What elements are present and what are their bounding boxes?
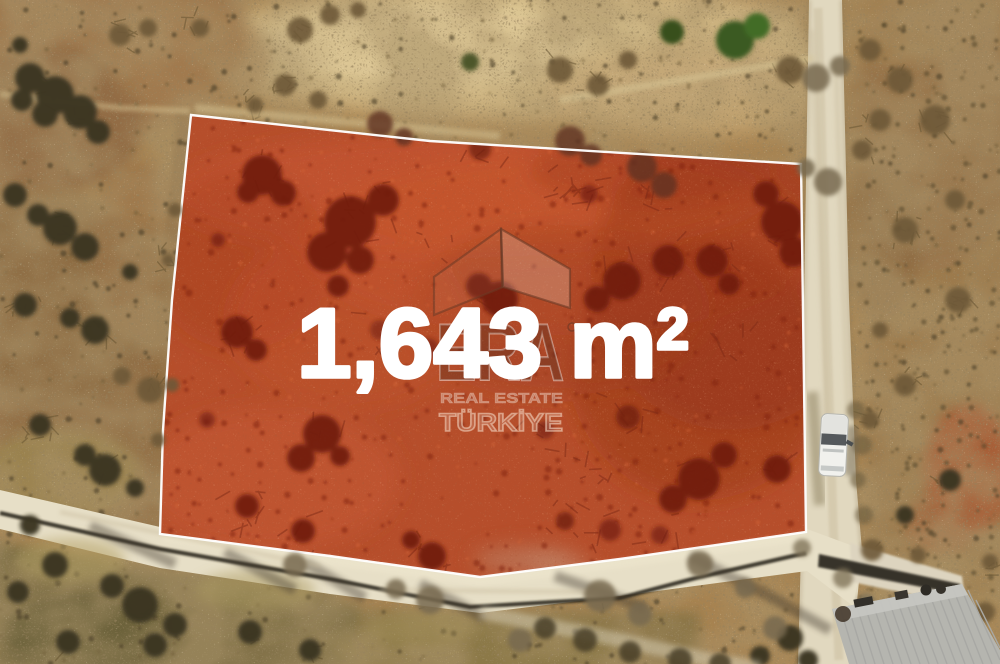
- svg-text:TÜRKİYE: TÜRKİYE: [439, 408, 563, 437]
- svg-text:1,643 m2: 1,643 m2: [297, 288, 689, 398]
